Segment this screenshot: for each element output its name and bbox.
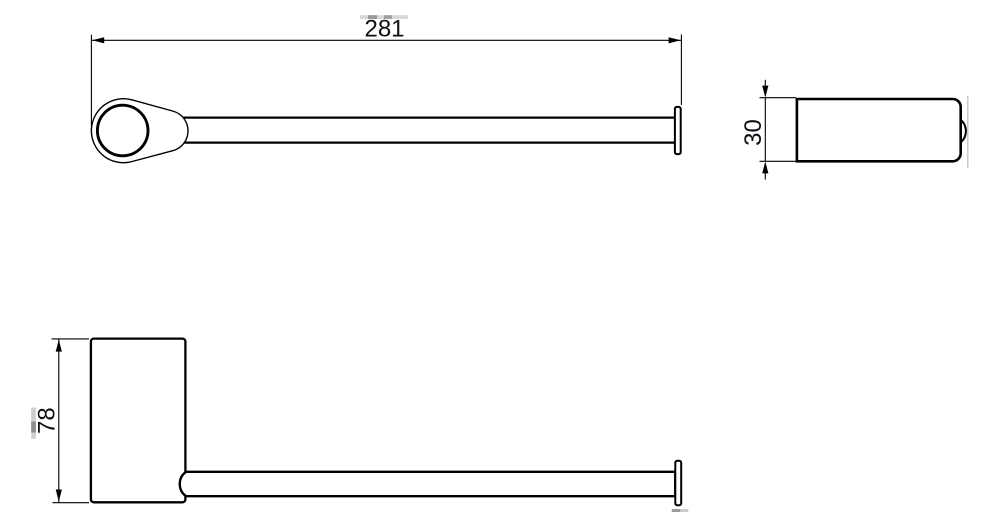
svg-text:30: 30 bbox=[740, 119, 767, 146]
svg-text:281: 281 bbox=[364, 15, 404, 42]
svg-text:78: 78 bbox=[33, 407, 60, 434]
